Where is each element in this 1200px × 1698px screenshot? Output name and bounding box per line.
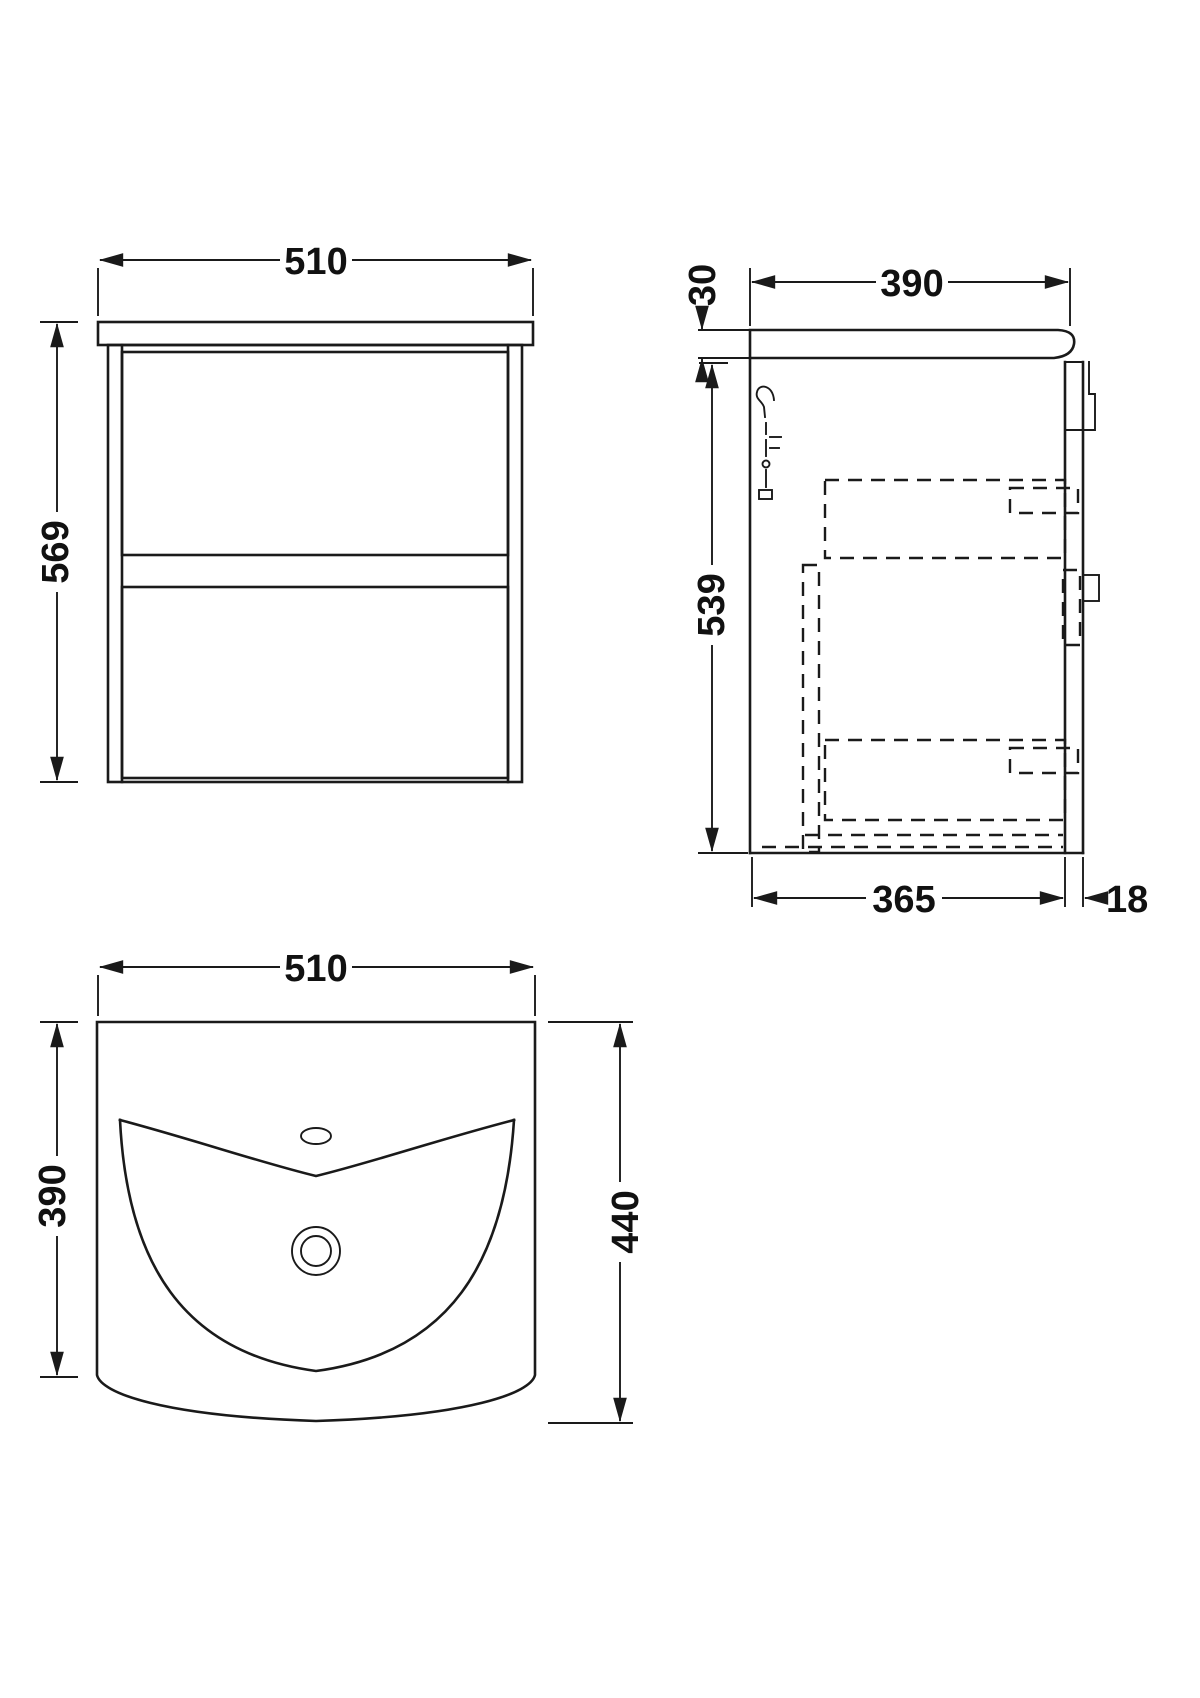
dim-plan-overall-depth-value: 440 — [605, 1190, 647, 1253]
dim-plan-depth-value: 390 — [32, 1164, 74, 1227]
dim-counter-thickness-value: 30 — [682, 264, 724, 306]
dim-internal-depth-value: 365 — [872, 879, 935, 921]
dim-body-height-label: 539 — [691, 565, 733, 645]
dim-front-height-label: 569 — [35, 512, 77, 592]
dim-plan-overall-depth-label: 440 — [605, 1182, 647, 1262]
technical-drawing-sheet: 510 569 — [0, 0, 1200, 1698]
dim-side-depth-value: 390 — [880, 263, 943, 305]
dim-body-height-value: 539 — [691, 573, 733, 636]
dim-panel-thickness-value: 18 — [1106, 879, 1148, 921]
dim-counter-thickness-label: 30 — [682, 264, 724, 306]
vanity-unit-drawing: 510 569 — [0, 0, 1200, 1698]
dim-front-height-value: 569 — [35, 520, 77, 583]
dim-plan-width-value: 510 — [284, 948, 347, 990]
dim-front-width-value: 510 — [284, 241, 347, 283]
dim-plan-depth-label: 390 — [32, 1156, 74, 1236]
sheet-background — [0, 0, 1200, 1698]
